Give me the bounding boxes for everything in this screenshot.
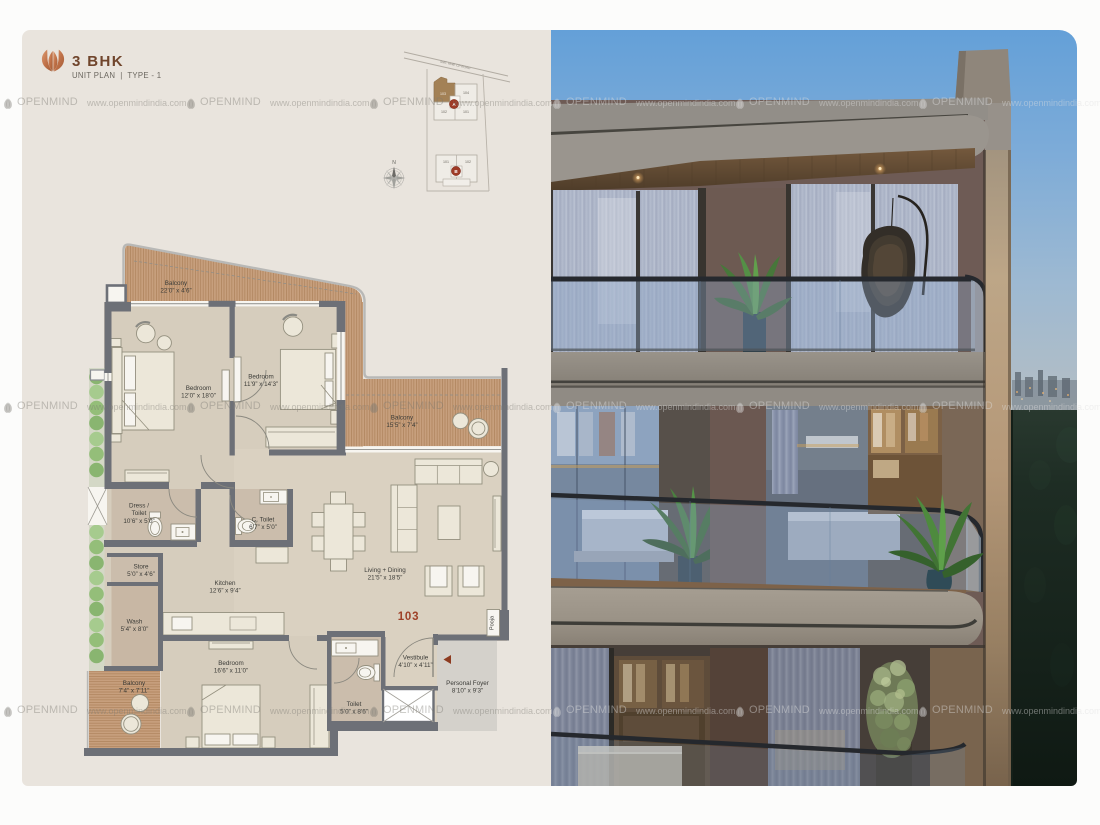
svg-text:101: 101 [463,110,469,114]
svg-text:Vestibule: Vestibule [403,655,429,662]
svg-text:102: 102 [441,110,447,114]
svg-text:Wash: Wash [127,619,143,626]
svg-text:6’7” x 5’0”: 6’7” x 5’0” [249,524,277,531]
svg-text:7’4” x 7’11”: 7’4” x 7’11” [119,688,150,695]
svg-text:N: N [392,160,396,166]
svg-text:Store: Store [133,564,149,571]
svg-text:10’6” x 5’0”: 10’6” x 5’0” [123,518,154,525]
svg-text:Kitchen: Kitchen [214,580,236,587]
svg-text:12’6” x 9’4”: 12’6” x 9’4” [209,588,240,595]
svg-text:C. Toilet: C. Toilet [252,517,275,524]
svg-text:Personal Foyer: Personal Foyer [446,680,489,687]
svg-text:103: 103 [398,611,420,623]
svg-text:Balcony: Balcony [123,680,146,687]
svg-text:4’10” x 4’11”: 4’10” x 4’11” [398,662,432,669]
svg-text:Toilet: Toilet [347,701,362,708]
svg-text:12’0” x 18’0”: 12’0” x 18’0” [181,393,216,400]
svg-text:15’5” x 7’4”: 15’5” x 7’4” [386,422,417,429]
svg-text:22’0” x 4’6”: 22’0” x 4’6” [160,288,191,295]
svg-text:21’5” x 18’5”: 21’5” x 18’5” [368,575,403,582]
svg-text:Bedroom: Bedroom [186,385,212,392]
svg-text:Bedroom: Bedroom [218,660,244,667]
svg-text:Balcony: Balcony [391,415,414,422]
svg-text:Dress /: Dress / [129,503,149,510]
svg-text:103: 103 [440,92,446,96]
svg-text:5’4” x 8’0”: 5’4” x 8’0” [121,626,149,633]
svg-text:102: 102 [465,160,471,164]
svg-text:5’0” x 4’6”: 5’0” x 4’6” [127,571,155,578]
svg-text:16’6” x 11’0”: 16’6” x 11’0” [214,668,248,675]
svg-text:SMT. HWE CP ROAD: SMT. HWE CP ROAD [440,60,472,71]
svg-text:Living + Dining: Living + Dining [364,567,406,574]
svg-text:Bedroom: Bedroom [248,374,274,381]
svg-text:Toilet: Toilet [132,510,147,517]
svg-text:5’0” x 8’6”: 5’0” x 8’6” [340,709,368,716]
svg-text:104: 104 [463,91,469,95]
svg-text:11’9” x 14’3”: 11’9” x 14’3” [244,381,278,388]
svg-text:Pooja: Pooja [490,615,496,630]
svg-text:8’10” x 9’3”: 8’10” x 9’3” [452,688,483,695]
svg-text:Balcony: Balcony [165,280,188,287]
svg-text:101: 101 [443,160,449,164]
